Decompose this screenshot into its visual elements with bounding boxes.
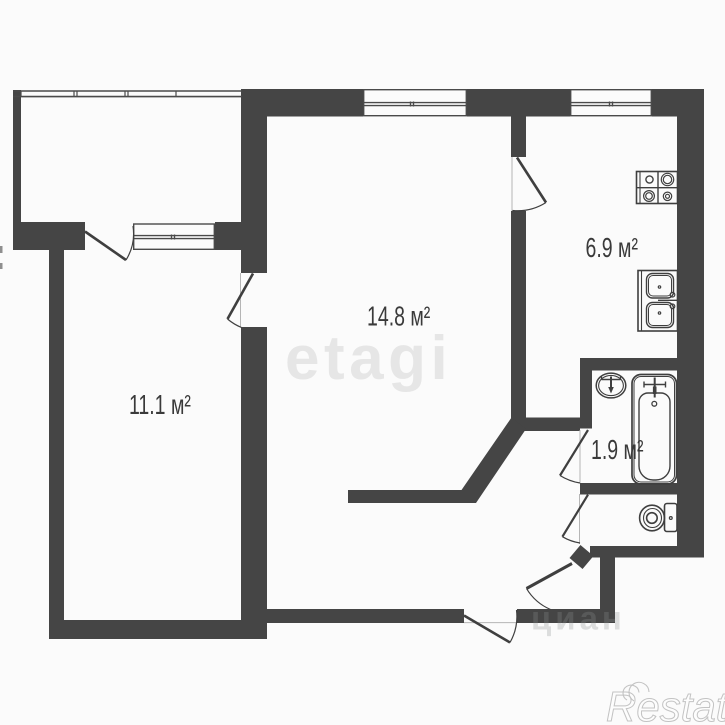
- svg-text:14.8 м²: 14.8 м²: [367, 301, 430, 332]
- svg-text:11.1 м²: 11.1 м²: [129, 390, 191, 421]
- svg-text:6.9 м²: 6.9 м²: [586, 233, 639, 264]
- svg-text:циан: циан: [531, 600, 626, 637]
- svg-text:1.9 м²: 1.9 м²: [591, 435, 644, 466]
- svg-text:etagi: etagi: [285, 324, 452, 393]
